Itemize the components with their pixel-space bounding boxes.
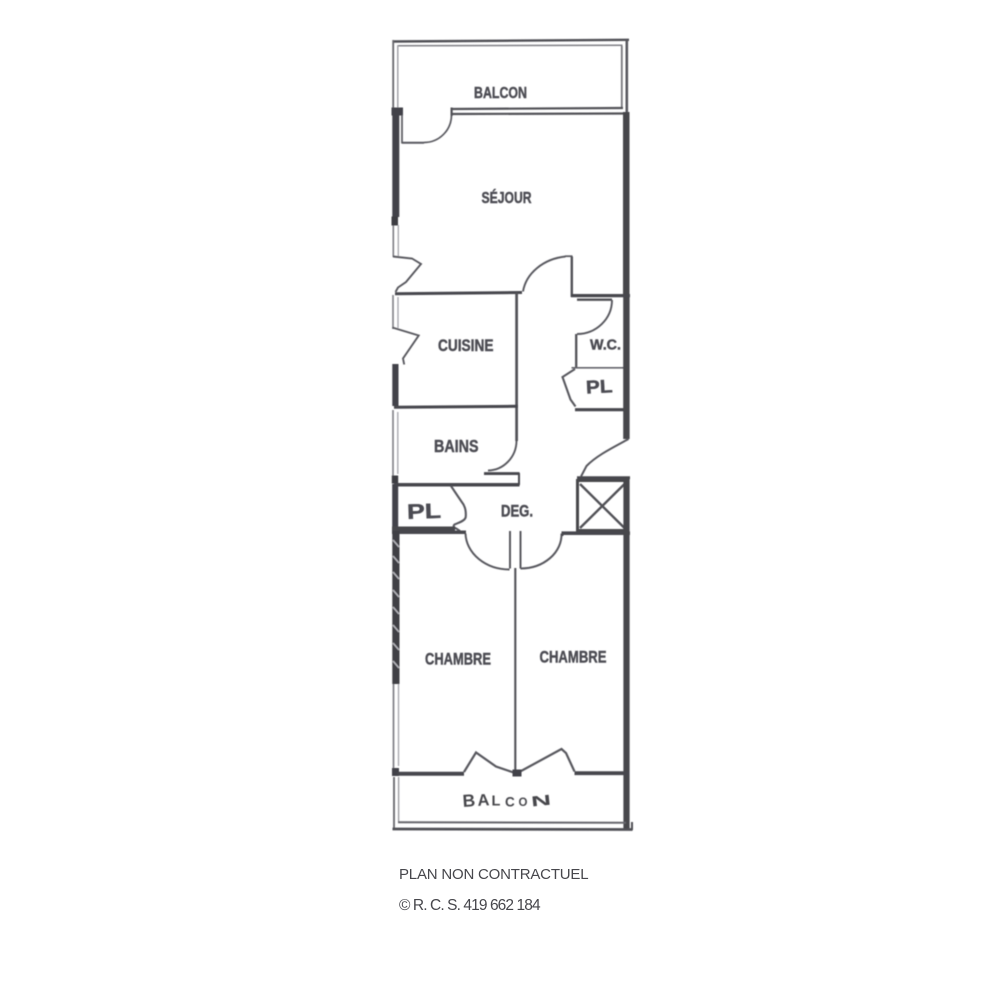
svg-text:B: B: [462, 790, 476, 811]
svg-text:W.C.: W.C.: [590, 338, 621, 354]
svg-text:DEG.: DEG.: [501, 502, 533, 521]
svg-text:CHAMBRE: CHAMBRE: [425, 650, 491, 669]
svg-text:SÉJOUR: SÉJOUR: [482, 188, 532, 207]
svg-text:O: O: [519, 797, 528, 809]
svg-text:C: C: [505, 795, 515, 810]
svg-text:PL: PL: [585, 375, 613, 397]
svg-text:A: A: [477, 791, 490, 810]
svg-text:CHAMBRE: CHAMBRE: [540, 648, 607, 667]
svg-text:CUISINE: CUISINE: [438, 337, 494, 355]
svg-text:BAINS: BAINS: [434, 436, 479, 456]
svg-text:BALCON: BALCON: [474, 85, 527, 102]
svg-text:N: N: [530, 793, 552, 811]
svg-text:L: L: [492, 794, 501, 810]
svg-text:PL: PL: [407, 500, 442, 524]
